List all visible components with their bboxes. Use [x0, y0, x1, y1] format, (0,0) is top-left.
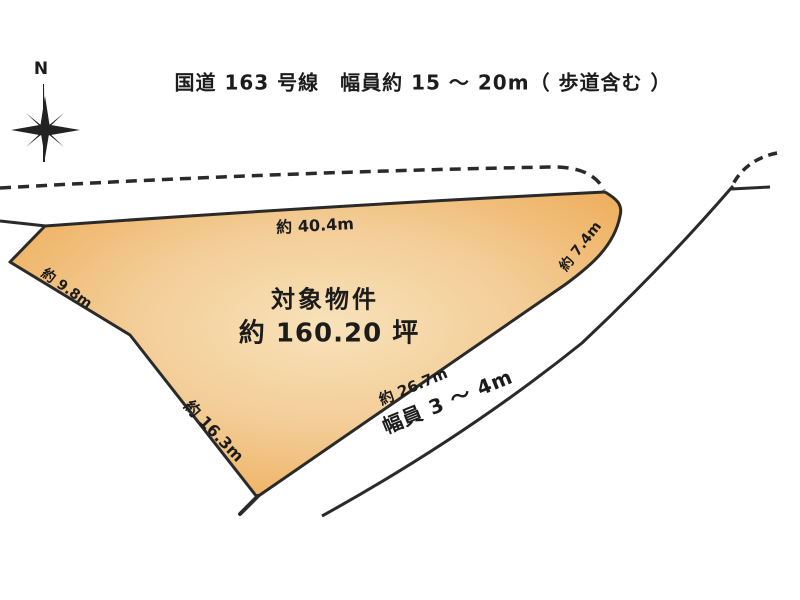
north-arrow-icon: [11, 84, 80, 162]
north-lot-line-extension: [0, 221, 46, 226]
northeast-dashed-boundary: [733, 153, 777, 184]
south-vertex-tick: [240, 496, 258, 514]
parcel-area: 約 160.20 坪: [239, 313, 419, 350]
east-lot-line: [731, 187, 770, 189]
dim-top-edge: 約 40.4m: [276, 210, 355, 238]
north-letter: N: [34, 59, 48, 79]
route163-dashed-boundary: [0, 167, 604, 190]
road-title: 国道 163 号線 幅員約 15 ～ 20m（ 歩道含む ）: [175, 67, 672, 96]
land-plot-diagram: 国道 163 号線 幅員約 15 ～ 20m（ 歩道含む ） N 対象物件 約 …: [0, 0, 800, 600]
parcel-name: 対象物件: [271, 280, 379, 315]
